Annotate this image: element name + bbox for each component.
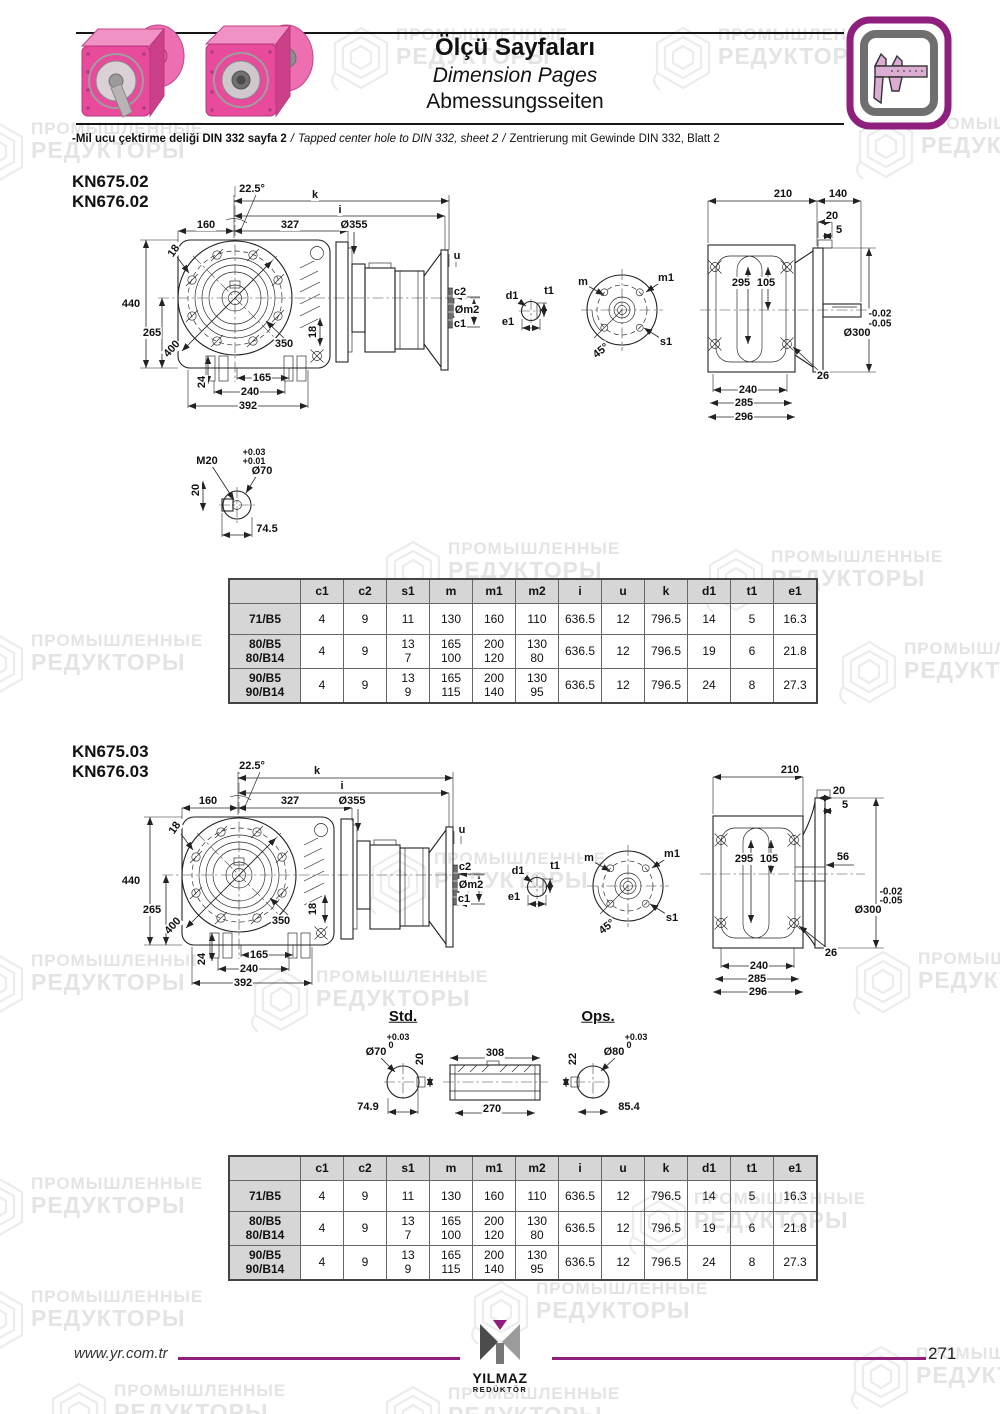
corner-cell xyxy=(229,1156,301,1181)
row-label: 71/B5 xyxy=(229,1181,301,1212)
watermark: ПРОМЫШЛЕННЫЕРЕДУКТОРЫ xyxy=(838,640,1000,706)
dim-label: 22 xyxy=(567,1052,579,1066)
company-logo: YILMAZ REDÜKTÖR xyxy=(462,1320,538,1395)
dim-label: 0 xyxy=(387,1041,394,1051)
dim-cell: 14 xyxy=(688,1181,731,1212)
dim-cell: 24 xyxy=(688,668,731,702)
dim-label: 20 xyxy=(825,210,839,222)
row-label: 71/B5 xyxy=(229,604,301,635)
col-header: u xyxy=(602,579,645,604)
dim-cell: 130 xyxy=(430,1181,473,1212)
dim-label: k xyxy=(313,765,321,777)
logo-text-2: REDÜKTÖR xyxy=(462,1385,538,1395)
col-header: i xyxy=(559,1156,602,1181)
dim-cell: 13 9 xyxy=(387,668,430,702)
row-label: 90/B5 90/B14 xyxy=(229,668,301,702)
dim-label: c2 xyxy=(453,286,467,298)
dim-cell: 110 xyxy=(516,604,559,635)
table-row: 71/B54911130160110636.512796.514516.3 xyxy=(229,604,817,635)
dim-cell: 200 140 xyxy=(473,1245,516,1279)
gearbox-photo-1 xyxy=(74,16,186,128)
dim-label: 392 xyxy=(233,977,253,989)
dimension-labels-1: 22.5°ki160327Ø35518440265400350241652403… xyxy=(0,170,1000,570)
col-header: i xyxy=(559,579,602,604)
hex-logo-icon xyxy=(0,632,27,698)
dim-cell: 165 100 xyxy=(430,635,473,669)
std-label: Std. xyxy=(388,1009,418,1026)
dimension-table-1: c1c2s1mm1m2iukd1t1e171/B5491113016011063… xyxy=(228,578,818,704)
dim-cell: 130 80 xyxy=(516,1212,559,1246)
dim-label: u xyxy=(458,824,467,836)
col-header: c1 xyxy=(301,579,344,604)
corner-cell xyxy=(229,579,301,604)
col-header: m1 xyxy=(473,579,516,604)
dim-label: Ø300 xyxy=(854,904,883,916)
dim-label: e1 xyxy=(507,891,521,903)
footer-rule-left xyxy=(178,1357,460,1360)
catalog-page: ПРОМЫШЛЕННЫЕРЕДУКТОРЫ ПРОМЫШЛЕННЫЕРЕДУКТ… xyxy=(0,0,1000,1414)
note-english: Tapped center hole to DIN 332, sheet 2 xyxy=(298,133,498,145)
dim-cell: 9 xyxy=(344,635,387,669)
dim-label: 165 xyxy=(249,949,269,961)
dim-label: i xyxy=(337,204,342,216)
dim-cell: 636.5 xyxy=(559,668,602,702)
dim-label: 20 xyxy=(832,785,846,797)
dim-cell: 4 xyxy=(301,1181,344,1212)
dim-label: e1 xyxy=(501,316,515,328)
col-header: m2 xyxy=(516,1156,559,1181)
dim-label: 210 xyxy=(773,188,793,200)
dim-label: s1 xyxy=(665,912,679,924)
dim-label: 22.5° xyxy=(238,183,266,195)
dim-label: 285 xyxy=(747,973,767,985)
hex-logo-icon xyxy=(850,1345,912,1411)
col-header: u xyxy=(602,1156,645,1181)
dim-cell: 796.5 xyxy=(645,635,688,669)
dim-label: m xyxy=(583,852,595,864)
dim-label: 392 xyxy=(238,400,258,412)
hex-logo-icon xyxy=(838,640,900,706)
note-separator: / xyxy=(498,133,509,145)
dim-label: m1 xyxy=(663,848,681,860)
dim-cell: 130 xyxy=(430,604,473,635)
dim-label: Øm2 xyxy=(454,304,480,316)
footer-rule-right xyxy=(552,1357,926,1360)
dim-label: 350 xyxy=(271,915,291,927)
dim-label: 440 xyxy=(121,875,141,887)
section-kn675-03: KN675.03 KN676.03 22.5°ki160327Ø35518440… xyxy=(0,740,1000,1140)
dim-cell: 9 xyxy=(344,1245,387,1279)
hex-logo-icon xyxy=(0,1288,27,1354)
table-row: 71/B54911130160110636.512796.514516.3 xyxy=(229,1181,817,1212)
dim-cell: 110 xyxy=(516,1181,559,1212)
dim-label: 265 xyxy=(142,327,162,339)
col-header: s1 xyxy=(387,1156,430,1181)
dim-label: 105 xyxy=(756,277,776,289)
title-german: Abmessungsseiten xyxy=(320,89,710,115)
dim-cell: 16.3 xyxy=(774,1181,818,1212)
dim-cell: 130 80 xyxy=(516,635,559,669)
dim-cell: 12 xyxy=(602,1245,645,1279)
dim-label: 5 xyxy=(841,799,849,811)
dim-label: 18 xyxy=(166,819,184,838)
dim-cell: 796.5 xyxy=(645,604,688,635)
dim-label: c1 xyxy=(453,318,467,330)
dim-label: m xyxy=(577,276,589,288)
dim-label: 285 xyxy=(734,397,754,409)
dim-label: 240 xyxy=(240,386,260,398)
row-label: 80/B5 80/B14 xyxy=(229,635,301,669)
dim-cell: 21.8 xyxy=(774,1212,818,1246)
dim-cell: 636.5 xyxy=(559,1245,602,1279)
col-header: m xyxy=(430,1156,473,1181)
dim-label: 45° xyxy=(596,916,618,937)
dim-cell: 9 xyxy=(344,1181,387,1212)
dim-cell: 19 xyxy=(688,635,731,669)
dim-label: 350 xyxy=(274,338,294,350)
dim-cell: 11 xyxy=(387,604,430,635)
dim-label: 18 xyxy=(307,902,319,916)
dim-label: 18 xyxy=(165,242,183,261)
dim-label: 440 xyxy=(121,298,141,310)
note-separator: / xyxy=(287,133,298,145)
dim-label: 85.4 xyxy=(617,1101,640,1113)
table-row: 90/B5 90/B144913 9165 115200 140130 9563… xyxy=(229,668,817,702)
row-label: 80/B5 80/B14 xyxy=(229,1212,301,1246)
dim-label: 160 xyxy=(198,795,218,807)
page-title: Ölçü Sayfaları Dimension Pages Abmessung… xyxy=(320,34,710,115)
col-header: e1 xyxy=(774,579,818,604)
col-header: c2 xyxy=(344,579,387,604)
dimension-table: c1c2s1mm1m2iukd1t1e171/B5491113016011063… xyxy=(228,1155,818,1281)
dim-label: 327 xyxy=(280,795,300,807)
section-kn675-02: KN675.02 KN676.02 xyxy=(0,170,1000,570)
dim-cell: 165 100 xyxy=(430,1212,473,1246)
dim-label: 5 xyxy=(835,224,843,236)
dim-label: 45° xyxy=(590,340,612,361)
dim-label: 24 xyxy=(196,952,208,966)
watermark: ПРОМЫШЛЕННЫЕРЕДУКТОРЫ xyxy=(0,1175,203,1241)
dim-label: 22.5° xyxy=(238,760,266,772)
dim-cell: 130 95 xyxy=(516,668,559,702)
col-header: s1 xyxy=(387,579,430,604)
dim-cell: 9 xyxy=(344,668,387,702)
dim-label: 20 xyxy=(190,483,202,497)
dim-cell: 13 7 xyxy=(387,1212,430,1246)
dim-cell: 796.5 xyxy=(645,1212,688,1246)
dim-cell: 165 115 xyxy=(430,668,473,702)
dim-cell: 4 xyxy=(301,604,344,635)
dim-label: Øm2 xyxy=(458,879,484,891)
dim-label: Ø70 xyxy=(251,465,274,477)
col-header: t1 xyxy=(731,579,774,604)
dim-label: 165 xyxy=(252,372,272,384)
dim-label: 160 xyxy=(196,219,216,231)
dim-cell: 4 xyxy=(301,1212,344,1246)
dim-cell: 6 xyxy=(731,1212,774,1246)
dim-label: d1 xyxy=(505,290,520,302)
din-note: -Mil ucu çektirme deliği DIN 332 sayfa 2… xyxy=(72,133,720,145)
dim-label: Ø70 xyxy=(365,1046,388,1058)
dim-cell: 8 xyxy=(731,668,774,702)
dim-label: m1 xyxy=(657,272,675,284)
dim-cell: 12 xyxy=(602,635,645,669)
dim-label: 296 xyxy=(734,411,754,423)
logo-text-1: YILMAZ xyxy=(462,1371,538,1385)
dim-cell: 4 xyxy=(301,1245,344,1279)
dim-cell: 19 xyxy=(688,1212,731,1246)
table-row: 80/B5 80/B144913 7165 100200 120130 8063… xyxy=(229,1212,817,1246)
col-header: e1 xyxy=(774,1156,818,1181)
dim-label: 295 xyxy=(734,853,754,865)
dim-cell: 796.5 xyxy=(645,668,688,702)
watermark: ПРОМЫШЛЕННЫЕРЕДУКТОРЫ xyxy=(48,1382,286,1414)
dim-label: 240 xyxy=(239,963,259,975)
dim-cell: 636.5 xyxy=(559,604,602,635)
col-header: m2 xyxy=(516,579,559,604)
page-number: 271 xyxy=(928,1344,956,1364)
hex-logo-icon xyxy=(48,1382,110,1414)
dim-label: Ø355 xyxy=(338,795,367,807)
dim-label: Ø80 xyxy=(603,1046,626,1058)
col-header: t1 xyxy=(731,1156,774,1181)
hex-logo-icon xyxy=(382,1385,444,1414)
dim-cell: 130 95 xyxy=(516,1245,559,1279)
col-header: m1 xyxy=(473,1156,516,1181)
table-row: 90/B5 90/B144913 9165 115200 140130 9563… xyxy=(229,1245,817,1279)
dimension-labels-2: 22.5°ki160327Ø35518440265400350241652403… xyxy=(0,740,1000,1140)
dimension-table-2: c1c2s1mm1m2iukd1t1e171/B5491113016011063… xyxy=(228,1155,818,1281)
dim-label: 24 xyxy=(196,375,208,389)
dim-label: 105 xyxy=(759,853,779,865)
row-label: 90/B5 90/B14 xyxy=(229,1245,301,1279)
dim-cell: 160 xyxy=(473,1181,516,1212)
dimension-table: c1c2s1mm1m2iukd1t1e171/B5491113016011063… xyxy=(228,578,818,704)
dim-label: 400 xyxy=(162,914,185,937)
ops-label: Ops. xyxy=(580,1009,615,1026)
col-header: k xyxy=(645,579,688,604)
dim-cell: 4 xyxy=(301,668,344,702)
dim-label: 210 xyxy=(780,764,800,776)
dim-label: 295 xyxy=(731,277,751,289)
dim-cell: 24 xyxy=(688,1245,731,1279)
table-row: 80/B5 80/B144913 7165 100200 120130 8063… xyxy=(229,635,817,669)
dim-cell: 6 xyxy=(731,635,774,669)
dim-label: 56 xyxy=(836,851,850,863)
dim-label: 140 xyxy=(828,188,848,200)
dim-cell: 636.5 xyxy=(559,1212,602,1246)
dim-cell: 12 xyxy=(602,1181,645,1212)
dim-cell: 14 xyxy=(688,604,731,635)
dim-cell: 13 9 xyxy=(387,1245,430,1279)
dim-label: s1 xyxy=(659,336,673,348)
dim-cell: 200 120 xyxy=(473,635,516,669)
dim-label: c2 xyxy=(458,861,472,873)
watermark: ПРОМЫШЛЕННЫЕРЕДУКТОРЫ xyxy=(0,632,203,698)
dim-cell: 12 xyxy=(602,1212,645,1246)
hex-logo-icon xyxy=(0,1175,27,1241)
note-turkish: -Mil ucu çektirme deliği DIN 332 sayfa 2 xyxy=(72,133,287,145)
dim-cell: 27.3 xyxy=(774,668,818,702)
col-header: c2 xyxy=(344,1156,387,1181)
dim-cell: 5 xyxy=(731,1181,774,1212)
watermark: ПРОМЫШЛЕННЫЕРЕДУКТОРЫ xyxy=(850,1345,1000,1411)
dim-cell: 5 xyxy=(731,604,774,635)
dim-label: 265 xyxy=(142,904,162,916)
yilmaz-logo-icon xyxy=(464,1320,536,1366)
dim-label: Ø300 xyxy=(843,327,872,339)
col-header: d1 xyxy=(688,579,731,604)
dim-cell: 200 120 xyxy=(473,1212,516,1246)
dim-cell: 8 xyxy=(731,1245,774,1279)
dim-cell: 27.3 xyxy=(774,1245,818,1279)
col-header: c1 xyxy=(301,1156,344,1181)
dim-cell: 636.5 xyxy=(559,635,602,669)
dim-label: c1 xyxy=(457,893,471,905)
dim-label: 240 xyxy=(738,384,758,396)
dim-label: t1 xyxy=(543,285,555,297)
dim-label: 18 xyxy=(307,325,319,339)
dim-label: Ø355 xyxy=(340,219,369,231)
col-header: m xyxy=(430,579,473,604)
dim-cell: 12 xyxy=(602,668,645,702)
dim-label: 74.5 xyxy=(255,523,278,535)
col-header: d1 xyxy=(688,1156,731,1181)
title-english: Dimension Pages xyxy=(320,63,710,89)
dim-label: 26 xyxy=(816,370,830,382)
dim-cell: 796.5 xyxy=(645,1181,688,1212)
dim-label: 270 xyxy=(482,1103,502,1115)
note-german: Zentrierung mit Gewinde DIN 332, Blatt 2 xyxy=(509,133,719,145)
dim-label: u xyxy=(453,250,462,262)
dim-label: 296 xyxy=(748,986,768,998)
dim-cell: 200 140 xyxy=(473,668,516,702)
dim-cell: 16.3 xyxy=(774,604,818,635)
dim-label: k xyxy=(311,189,319,201)
dim-cell: 4 xyxy=(301,635,344,669)
dim-label: 0 xyxy=(625,1041,632,1051)
dim-label: t1 xyxy=(549,860,561,872)
dim-cell: 636.5 xyxy=(559,1181,602,1212)
dim-cell: 13 7 xyxy=(387,635,430,669)
dim-cell: 12 xyxy=(602,604,645,635)
dim-label: 20 xyxy=(414,1052,426,1066)
dim-label: 308 xyxy=(485,1047,505,1059)
dim-label: 400 xyxy=(161,337,184,360)
gearbox-photo-2 xyxy=(192,12,314,128)
col-header: k xyxy=(645,1156,688,1181)
dim-cell: 165 115 xyxy=(430,1245,473,1279)
dim-cell: 160 xyxy=(473,604,516,635)
caliper-icon xyxy=(845,14,955,134)
dim-cell: 21.8 xyxy=(774,635,818,669)
title-turkish: Ölçü Sayfaları xyxy=(320,34,710,63)
dim-label: i xyxy=(339,780,344,792)
dim-cell: 9 xyxy=(344,1212,387,1246)
website-url[interactable]: www.yr.com.tr xyxy=(74,1345,168,1362)
dim-label: 26 xyxy=(824,947,838,959)
dim-label: d1 xyxy=(511,865,526,877)
dim-label: M20 xyxy=(195,455,218,467)
dim-label: 74.9 xyxy=(356,1101,379,1113)
dim-label: 240 xyxy=(749,960,769,972)
dim-cell: 796.5 xyxy=(645,1245,688,1279)
dim-cell: 9 xyxy=(344,604,387,635)
dim-cell: 11 xyxy=(387,1181,430,1212)
dim-label: 327 xyxy=(280,219,300,231)
